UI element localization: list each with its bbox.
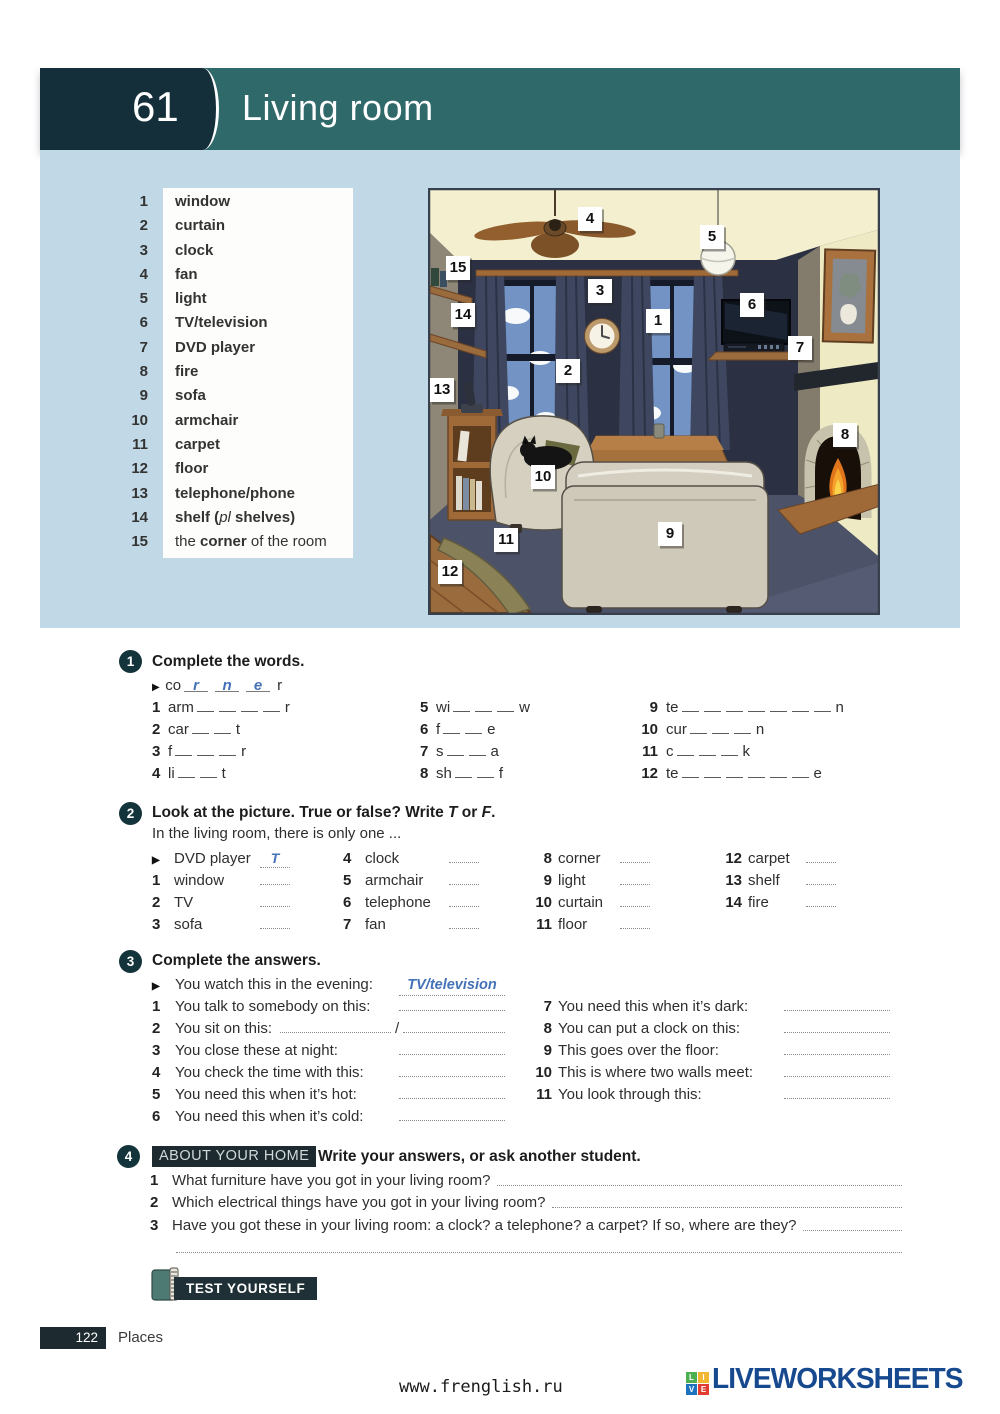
item-number: 11: [526, 1084, 552, 1106]
word-list-item: fan: [175, 263, 351, 287]
exercise1-item: 5wiw: [420, 697, 530, 719]
item-question: What furniture have you got in your livi…: [172, 1170, 497, 1192]
item-number: 8: [420, 763, 436, 785]
word-list-number: 2: [100, 214, 148, 238]
answer-line[interactable]: [399, 1106, 505, 1121]
item-word: window: [174, 870, 260, 892]
exercise4-item: 1What furniture have you got in your liv…: [150, 1170, 902, 1192]
section-name: Places: [118, 1329, 163, 1346]
item-number: 3: [152, 741, 168, 763]
item-word: carpet: [748, 848, 806, 870]
test-yourself-button[interactable]: TEST YOURSELF: [174, 1277, 317, 1300]
exercise1-item: 4lit: [152, 763, 290, 785]
answer-blank[interactable]: [726, 764, 743, 778]
word-list-number: 3: [100, 239, 148, 263]
word-list-item-part: armchair: [175, 412, 238, 429]
exercise4-title: Write your answers, or ask another stude…: [318, 1148, 641, 1166]
word-list-numbers: 123456789101112131415: [100, 190, 148, 554]
exercise3-item: ▶You watch this in the evening:TV/televi…: [152, 974, 505, 996]
item-number: 2: [152, 892, 174, 914]
answer-blank[interactable]: [447, 742, 464, 756]
word-prefix: co: [165, 677, 181, 694]
item-number: 4: [152, 1062, 175, 1084]
true-false-answer[interactable]: [806, 871, 836, 885]
word-suffix: n: [836, 699, 844, 716]
exercise2-column3: 8corner9light10curtain11floor: [526, 848, 650, 936]
word-prefix: s: [436, 743, 444, 760]
word-prefix: f: [436, 721, 440, 738]
word-list-item: shelf (pl shelves): [175, 506, 351, 530]
word-list-item: curtain: [175, 214, 351, 238]
illustration-label-3: 3: [588, 279, 612, 303]
word-suffix: a: [491, 743, 499, 760]
item-number: 11: [526, 914, 552, 936]
item-number: 8: [526, 1018, 552, 1040]
exercise2-item: 10curtain: [526, 892, 650, 914]
word-list-item: DVD player: [175, 336, 351, 360]
exercise1-item: 8shf: [420, 763, 530, 785]
answer-blank[interactable]: [175, 742, 192, 756]
item-prompt: You talk to somebody on this:: [175, 996, 399, 1018]
exercise3-column1: ▶You watch this in the evening:TV/televi…: [152, 974, 505, 1128]
word-list-number: 12: [100, 457, 148, 481]
word-suffix: r: [285, 699, 290, 716]
word-list-item-part: shelves): [231, 509, 295, 526]
answer-blank[interactable]: [197, 698, 214, 712]
answer-blank[interactable]: [770, 698, 787, 712]
answer-blank[interactable]: [214, 720, 231, 734]
exercise1-example: ▶ corner: [152, 675, 282, 697]
true-false-answer[interactable]: [449, 849, 479, 863]
answer-blank[interactable]: [475, 698, 492, 712]
word-list-item: fire: [175, 360, 351, 384]
item-word: TV: [174, 892, 260, 914]
exercise3-item: 10This is where two walls meet:: [526, 1062, 890, 1084]
answer-blank[interactable]: [197, 742, 214, 756]
exercise2-item: 4clock: [343, 848, 479, 870]
answer-blank[interactable]: [748, 764, 765, 778]
illustration-label-9: 9: [658, 522, 682, 546]
answer-line[interactable]: [784, 1084, 890, 1099]
illustration-label-1: 1: [646, 309, 670, 333]
exercise2-title-part: F: [482, 804, 491, 821]
illustration-labels: 451536141721381091112: [428, 188, 880, 615]
true-false-answer[interactable]: [620, 915, 650, 929]
item-prompt: You need this when it’s dark:: [558, 996, 784, 1018]
word-list-item-part: telephone/phone: [175, 485, 295, 502]
answer-line[interactable]: [399, 1062, 505, 1077]
item-word: curtain: [558, 892, 620, 914]
exercise3-column2: 7You need this when it’s dark:8You can p…: [526, 996, 890, 1106]
item-number: 5: [343, 870, 365, 892]
word-list-item: telephone/phone: [175, 482, 351, 506]
word-list-item-part: curtain: [175, 217, 225, 234]
item-number: 12: [714, 848, 742, 870]
illustration-label-13: 13: [430, 378, 454, 402]
item-number: 12: [628, 763, 658, 785]
exercise3-item: 7You need this when it’s dark:: [526, 996, 890, 1018]
illustration-label-12: 12: [438, 560, 462, 584]
item-number: 1: [152, 697, 168, 719]
word-list-item: armchair: [175, 409, 351, 433]
answer-blank[interactable]: [178, 764, 195, 778]
item-number: 1: [152, 870, 174, 892]
word-list-item-part: TV/television: [175, 314, 268, 331]
exercise1-item: 2cart: [152, 719, 290, 741]
word-prefix: te: [666, 699, 679, 716]
illustration-label-6: 6: [740, 293, 764, 317]
word-list-number: 14: [100, 506, 148, 530]
exercise3-item: 9This goes over the floor:: [526, 1040, 890, 1062]
answer-blank[interactable]: [677, 742, 694, 756]
word-suffix: r: [241, 743, 246, 760]
example-marker-icon: ▶: [152, 850, 174, 872]
item-prompt: You close these at night:: [175, 1040, 399, 1062]
word-list: windowcurtainclockfanlightTV/televisionD…: [175, 190, 351, 554]
answer-blank[interactable]: [465, 720, 482, 734]
exercise1-title: Complete the words.: [152, 653, 304, 671]
exercise2-column4: 12carpet13shelf14fire: [714, 848, 836, 914]
exercise2-column2: 4clock5armchair6telephone7fan: [343, 848, 479, 936]
page-title: Living room: [242, 87, 434, 129]
word-suffix: e: [814, 765, 822, 782]
item-number: 7: [343, 914, 365, 936]
word-list-number: 15: [100, 530, 148, 554]
illustration-label-7: 7: [788, 336, 812, 360]
answer-line[interactable]: [403, 1018, 505, 1033]
word-suffix: f: [499, 765, 503, 782]
exercise4-number: 4: [117, 1145, 140, 1168]
item-number: 3: [152, 914, 174, 936]
word-prefix: sh: [436, 765, 452, 782]
unit-number: 61: [132, 83, 179, 131]
item-number: 11: [628, 741, 658, 763]
exercise4-item: 3Have you got these in your living room:…: [150, 1215, 902, 1237]
word-list-item-part: corner: [200, 533, 247, 550]
logo-letter-square: L: [686, 1372, 697, 1383]
answer-blank[interactable]: [241, 698, 258, 712]
item-number: 13: [714, 870, 742, 892]
word-prefix: f: [168, 743, 172, 760]
item-number: 3: [150, 1215, 172, 1237]
exercise2-item: 2TV: [152, 892, 290, 914]
exercise2-item: 1window: [152, 870, 290, 892]
exercise1-item: 11ck: [628, 741, 844, 763]
item-word: armchair: [365, 870, 449, 892]
item-number: 6: [343, 892, 365, 914]
true-false-answer[interactable]: [620, 871, 650, 885]
word-list-item-part: fire: [175, 363, 198, 380]
item-number: 10: [526, 1062, 552, 1084]
exercise3-title: Complete the answers.: [152, 952, 321, 970]
exercise1-item: 9ten: [628, 697, 844, 719]
item-number: 4: [152, 763, 168, 785]
word-prefix: wi: [436, 699, 450, 716]
item-number: 2: [150, 1192, 172, 1214]
exercise1-column1: 1armr2cart3fr4lit: [152, 697, 290, 785]
answer-line[interactable]: [552, 1192, 902, 1208]
item-word: corner: [558, 848, 620, 870]
exercise4-items: 1What furniture have you got in your liv…: [150, 1170, 902, 1237]
answer-line[interactable]: [497, 1170, 903, 1186]
true-false-answer[interactable]: [260, 871, 290, 885]
answer-blank[interactable]: [712, 720, 729, 734]
item-number: 4: [343, 848, 365, 870]
liveworksheets-logo-icon: LIVE: [686, 1372, 710, 1396]
word-list-item: clock: [175, 239, 351, 263]
word-list-number: 9: [100, 384, 148, 408]
word-list-number: 11: [100, 433, 148, 457]
item-question: Which electrical things have you got in …: [172, 1192, 552, 1214]
living-room-illustration: 451536141721381091112: [428, 188, 880, 615]
answer-blank[interactable]: [734, 720, 751, 734]
answer-blank[interactable]: [748, 698, 765, 712]
answer-letter-slot[interactable]: r: [184, 675, 208, 692]
word-list-number: 5: [100, 287, 148, 311]
item-number: 3: [152, 1040, 175, 1062]
word-list-number: 7: [100, 336, 148, 360]
word-list-item: TV/television: [175, 311, 351, 335]
answer-line[interactable]: [399, 996, 505, 1011]
exercise2-item: 5armchair: [343, 870, 479, 892]
exercise3-item: 6You need this when it’s cold:: [152, 1106, 505, 1128]
illustration-label-14: 14: [451, 303, 475, 327]
true-false-answer[interactable]: [449, 893, 479, 907]
logo-letter-square: V: [686, 1384, 697, 1395]
answer-blank[interactable]: [704, 698, 721, 712]
exercise2-subtitle: In the living room, there is only one ..…: [152, 825, 401, 842]
answer-blank[interactable]: [770, 764, 787, 778]
word-list-item-part: clock: [175, 242, 213, 259]
watermark-url: www.frenglish.ru: [399, 1377, 563, 1397]
item-prompt: You watch this in the evening:: [175, 974, 399, 996]
item-number: 10: [628, 719, 658, 741]
item-word: shelf: [748, 870, 806, 892]
exercise1-item: 10curn: [628, 719, 844, 741]
exercise2-item: ▶DVD playerT: [152, 848, 290, 870]
illustration-label-11: 11: [494, 528, 518, 552]
word-suffix: t: [236, 721, 240, 738]
example-marker-icon: ▶: [152, 976, 175, 998]
true-false-answer[interactable]: [806, 893, 836, 907]
word-list-item-part: the: [175, 533, 200, 550]
word-list-item: window: [175, 190, 351, 214]
word-list-item-part: pl: [219, 509, 231, 526]
answer-blank[interactable]: [219, 698, 236, 712]
answer-blank[interactable]: [682, 698, 699, 712]
exercise2-item: 14fire: [714, 892, 836, 914]
exercise3-item: 2You sit on this:/: [152, 1018, 505, 1040]
exercise2-item: 3sofa: [152, 914, 290, 936]
item-word: floor: [558, 914, 620, 936]
answer-letter-slot[interactable]: e: [246, 675, 270, 692]
answer-blank[interactable]: [263, 698, 280, 712]
item-word: sofa: [174, 914, 260, 936]
exercise2-item: 11floor: [526, 914, 650, 936]
answer-blank[interactable]: [814, 698, 831, 712]
item-prompt: You need this when it’s cold:: [175, 1106, 399, 1128]
answer-blank[interactable]: [192, 720, 209, 734]
answer-blank[interactable]: [443, 720, 460, 734]
item-word: fire: [748, 892, 806, 914]
illustration-label-10: 10: [531, 465, 555, 489]
word-suffix: t: [222, 765, 226, 782]
word-list-item-part: of the room: [247, 533, 327, 550]
word-prefix: arm: [168, 699, 194, 716]
answer-blank[interactable]: [721, 742, 738, 756]
answer-line[interactable]: [399, 1040, 505, 1055]
word-list-item: carpet: [175, 433, 351, 457]
answer-blank[interactable]: [219, 742, 236, 756]
item-number: 8: [526, 848, 552, 870]
word-list-item: the corner of the room: [175, 530, 351, 554]
answer-blank[interactable]: [455, 764, 472, 778]
exercise1-item: 6fe: [420, 719, 530, 741]
exercise3-item: 4You check the time with this:: [152, 1062, 505, 1084]
answer-line[interactable]: [784, 1040, 890, 1055]
answer-blank[interactable]: [682, 764, 699, 778]
item-number: 9: [526, 1040, 552, 1062]
answer-blank[interactable]: [726, 698, 743, 712]
illustration-label-4: 4: [578, 207, 602, 231]
answer-line[interactable]: [399, 1084, 505, 1099]
answer-blank[interactable]: [497, 698, 514, 712]
answer-letter-slot[interactable]: n: [215, 675, 239, 692]
answer-line[interactable]: [784, 996, 890, 1011]
item-number: 6: [152, 1106, 175, 1128]
answer-line[interactable]: [803, 1215, 902, 1231]
item-number: 2: [152, 719, 168, 741]
exercise1-item: 12tee: [628, 763, 844, 785]
item-number: 5: [152, 1084, 175, 1106]
item-prompt: You check the time with this:: [175, 1062, 399, 1084]
exercise3-item: 3You close these at night:: [152, 1040, 505, 1062]
word-list-item: sofa: [175, 384, 351, 408]
true-false-answer[interactable]: [449, 871, 479, 885]
exercise3-item: 11You look through this:: [526, 1084, 890, 1106]
word-suffix: k: [743, 743, 751, 760]
true-false-answer[interactable]: T: [260, 850, 290, 868]
logo-letter-square: E: [698, 1384, 709, 1395]
item-prompt: You need this when it’s hot:: [175, 1084, 399, 1106]
answer-blank[interactable]: [792, 764, 809, 778]
illustration-label-5: 5: [700, 225, 724, 249]
slash-separator: /: [391, 1020, 403, 1037]
exercise2-item: 7fan: [343, 914, 479, 936]
true-false-answer[interactable]: [260, 915, 290, 929]
about-your-home-badge: ABOUT YOUR HOME: [152, 1146, 316, 1167]
word-list-item: light: [175, 287, 351, 311]
word-list-item-part: fan: [175, 266, 198, 283]
word-list-number: 13: [100, 482, 148, 506]
word-suffix: e: [487, 721, 495, 738]
exercise2-number: 2: [119, 802, 142, 825]
answer-line[interactable]: TV/television: [399, 977, 505, 996]
exercise1-item: 1armr: [152, 697, 290, 719]
true-false-answer[interactable]: [260, 893, 290, 907]
illustration-label-2: 2: [556, 359, 580, 383]
word-list-number: 10: [100, 409, 148, 433]
word-list-item: floor: [175, 457, 351, 481]
exercise3-item: 1You talk to somebody on this:: [152, 996, 505, 1018]
answer-blank[interactable]: [453, 698, 470, 712]
true-false-answer[interactable]: [620, 849, 650, 863]
word-suffix: n: [756, 721, 764, 738]
item-number: 9: [628, 697, 658, 719]
page-number-box: 122: [40, 1327, 106, 1349]
true-false-answer[interactable]: [620, 893, 650, 907]
exercise2-item: 6telephone: [343, 892, 479, 914]
exercise4-item: 2Which electrical things have you got in…: [150, 1192, 902, 1214]
item-number: 10: [526, 892, 552, 914]
answer-line[interactable]: [280, 1018, 391, 1033]
exercise2-title-part: or: [457, 804, 481, 821]
word-prefix: c: [666, 743, 674, 760]
item-number: 7: [420, 741, 436, 763]
exercise1-column3: 9ten10curn11ck12tee: [628, 697, 844, 785]
example-marker-icon: ▶: [152, 677, 165, 699]
item-word: telephone: [365, 892, 449, 914]
word-list-item-part: shelf (: [175, 509, 219, 526]
item-prompt: You can put a clock on this:: [558, 1018, 784, 1040]
answer-blank[interactable]: [792, 698, 809, 712]
item-word: DVD player: [174, 848, 260, 870]
item-prompt: This goes over the floor:: [558, 1040, 784, 1062]
word-list-item-part: sofa: [175, 387, 206, 404]
answer-blank[interactable]: [200, 764, 217, 778]
exercise3-number: 3: [119, 950, 142, 973]
illustration-label-15: 15: [446, 256, 470, 280]
item-question: Have you got these in your living room: …: [172, 1215, 803, 1237]
answer-blank[interactable]: [704, 764, 721, 778]
word-list-number: 6: [100, 311, 148, 335]
word-prefix: te: [666, 765, 679, 782]
answer-line[interactable]: [784, 1018, 890, 1033]
word-prefix: cur: [666, 721, 687, 738]
item-number: 14: [714, 892, 742, 914]
answer-blank[interactable]: [477, 764, 494, 778]
item-number: 1: [150, 1170, 172, 1192]
true-false-answer[interactable]: [806, 849, 836, 863]
item-prompt: This is where two walls meet:: [558, 1062, 784, 1084]
exercise1-item: 3fr: [152, 741, 290, 763]
item-number: 5: [420, 697, 436, 719]
word-list-item-part: window: [175, 193, 230, 210]
item-number: 9: [526, 870, 552, 892]
answer-blank[interactable]: [690, 720, 707, 734]
exercise3-item: 8You can put a clock on this:: [526, 1018, 890, 1040]
exercise2-column1: ▶DVD playerT1window2TV3sofa: [152, 848, 290, 936]
word-list-number: 4: [100, 263, 148, 287]
exercise2-title: Look at the picture. True or false? Writ…: [152, 804, 495, 822]
exercise2-item: 9light: [526, 870, 650, 892]
exercise2-item: 12carpet: [714, 848, 836, 870]
answer-blank[interactable]: [469, 742, 486, 756]
true-false-answer[interactable]: [449, 915, 479, 929]
illustration-label-8: 8: [833, 423, 857, 447]
word-list-item-part: light: [175, 290, 207, 307]
answer-blank[interactable]: [699, 742, 716, 756]
answer-line[interactable]: [784, 1062, 890, 1077]
item-word: light: [558, 870, 620, 892]
exercise4-extra-answer-line[interactable]: [176, 1238, 902, 1253]
word-prefix: car: [168, 721, 189, 738]
exercise1-item: 7sa: [420, 741, 530, 763]
item-prompt: You sit on this:: [175, 1018, 272, 1040]
item-prompt: You look through this:: [558, 1084, 784, 1106]
item-word: clock: [365, 848, 449, 870]
word-prefix: li: [168, 765, 175, 782]
